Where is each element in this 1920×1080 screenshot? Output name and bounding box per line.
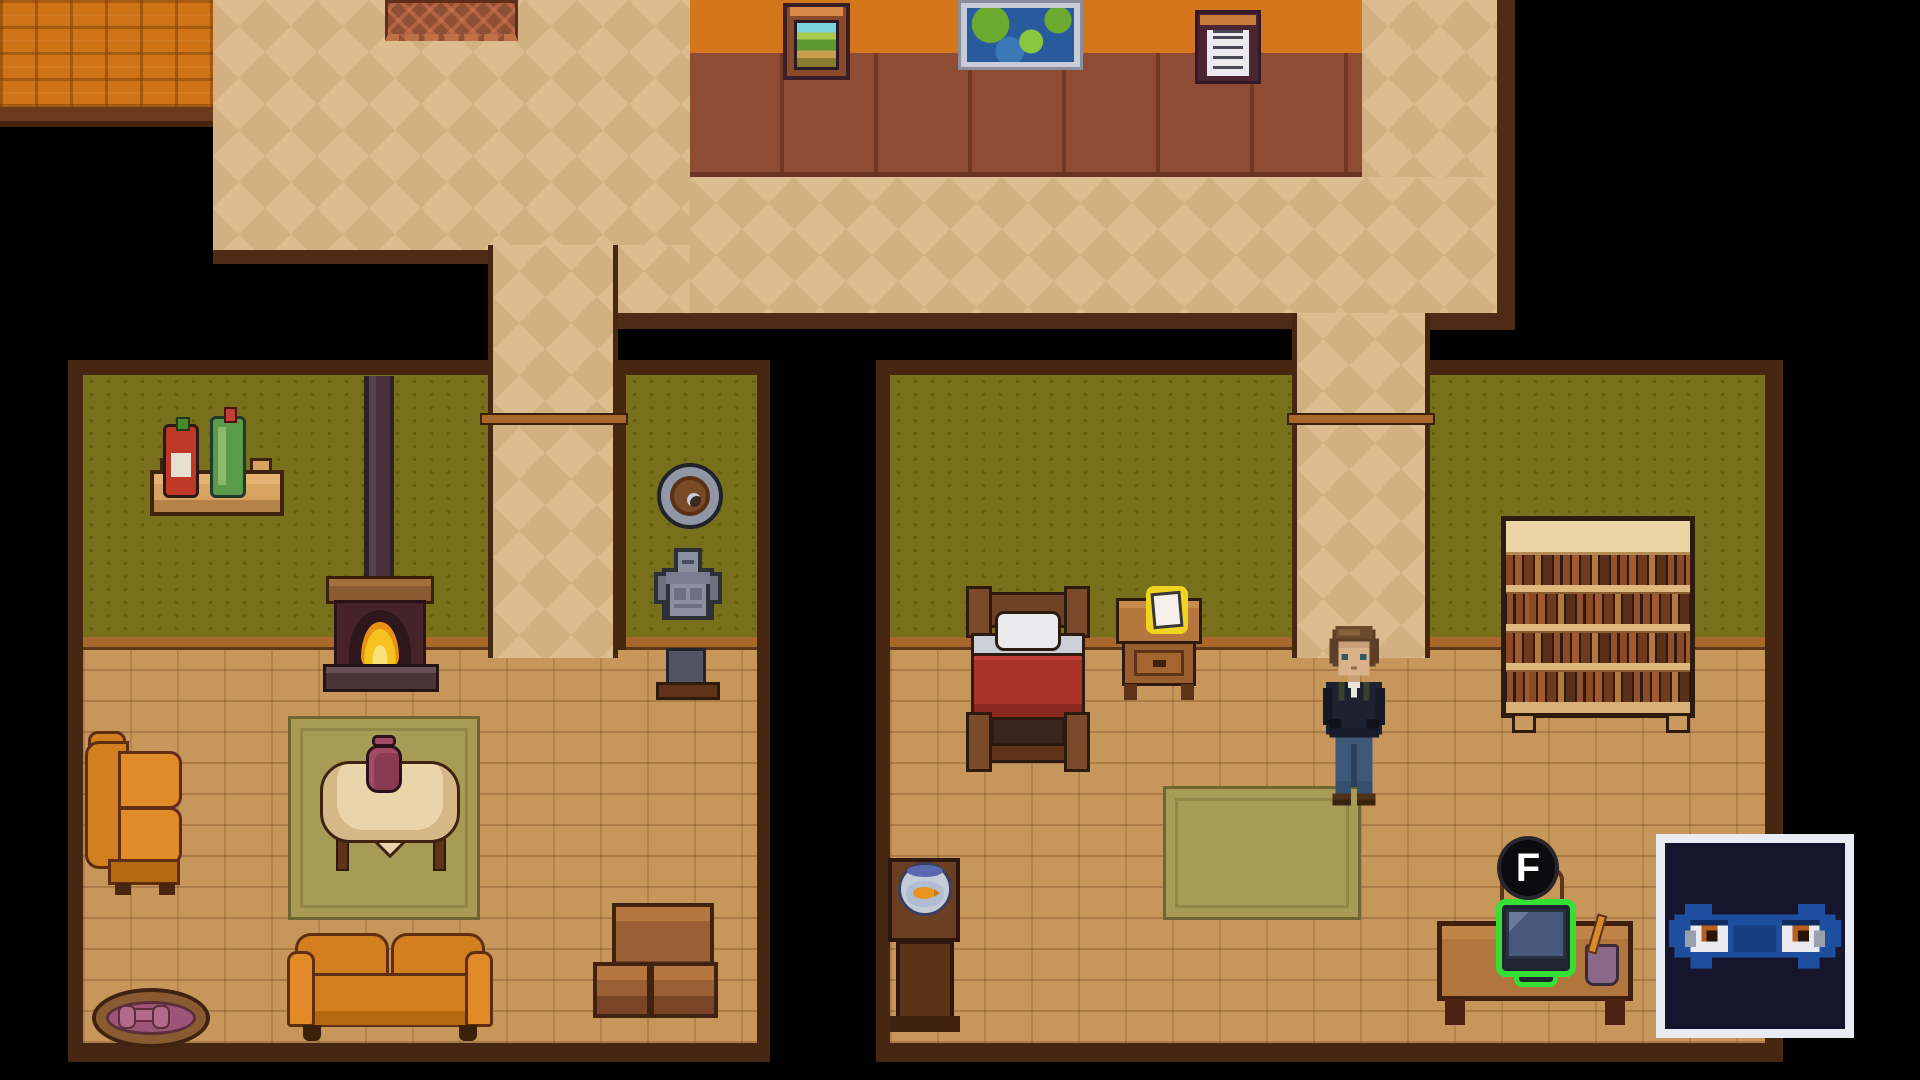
world-map	[958, 0, 1083, 70]
bookshelf-shelves	[1506, 555, 1690, 702]
hallway-floor	[618, 245, 690, 315]
floor-trim	[1497, 0, 1515, 315]
wall-shelf	[148, 418, 288, 522]
bust-statue-figure	[650, 548, 726, 652]
nightstand-leg	[1124, 684, 1137, 700]
roof-shingles	[0, 0, 213, 107]
sofa-armrest	[465, 951, 493, 1027]
painting-art	[794, 20, 839, 70]
green-bottle	[210, 416, 246, 498]
hallway-floor	[1362, 0, 1497, 177]
desk-leg	[1445, 999, 1465, 1025]
vase	[365, 735, 403, 801]
sofa-foot	[459, 1025, 477, 1041]
armchair-cushion	[118, 807, 182, 865]
bottle-shine	[218, 427, 226, 485]
bed-pillow	[995, 611, 1061, 651]
door-lintel	[1287, 413, 1435, 425]
bed-footboard	[985, 743, 1071, 763]
shield-center	[670, 476, 710, 516]
map-art	[967, 8, 1074, 62]
sofa-armrest	[287, 951, 315, 1027]
interact-key-prompt: F	[1497, 836, 1559, 900]
fishbowl	[898, 862, 952, 916]
bottle-cap	[224, 407, 237, 423]
floor-trim	[213, 250, 488, 264]
bedroom-wall	[890, 375, 1297, 640]
shelf-board	[1506, 585, 1690, 594]
sofa	[287, 933, 493, 1045]
hallway-floor	[690, 177, 1497, 313]
bone-toy	[122, 1008, 166, 1022]
bed-post	[966, 712, 992, 772]
chevron-rug	[385, 0, 518, 41]
painting-frame-top	[790, 7, 843, 16]
notice-board	[1195, 10, 1261, 84]
nightstand-drawer	[1134, 650, 1184, 676]
bed-post	[1064, 586, 1090, 638]
bookshelf	[1501, 516, 1695, 718]
book-row	[1506, 633, 1690, 663]
game-viewport[interactable]: F	[0, 0, 1920, 1080]
bookshelf-foot	[1512, 713, 1536, 733]
armchair-cushion	[118, 751, 182, 809]
player-sprite	[1310, 620, 1398, 818]
wood-stove	[323, 576, 439, 696]
sofa-foot	[303, 1025, 321, 1041]
sofa-front	[304, 1011, 476, 1025]
book-row	[1506, 555, 1690, 585]
interact-key-label: F	[1516, 846, 1540, 891]
door-lintel	[480, 413, 628, 425]
wall-shield	[657, 463, 723, 529]
doorway-right	[1292, 313, 1430, 658]
ninja-avatar-overlay	[1656, 834, 1854, 1038]
vase-lip	[372, 735, 396, 747]
book-row	[1506, 672, 1690, 702]
shield-hub	[687, 493, 701, 507]
statue-pedestal	[666, 648, 706, 686]
fishbowl-rim	[907, 865, 943, 877]
desk-leg	[1605, 999, 1625, 1025]
shelf-board	[1506, 663, 1690, 672]
player-character	[1310, 620, 1398, 818]
bottle-label	[171, 453, 191, 477]
ninja-eyes-icon	[1669, 896, 1841, 976]
fishbowl-stand-column	[896, 940, 954, 1022]
glowing-note[interactable]	[1146, 586, 1188, 634]
fishbowl-stand-base	[890, 1016, 960, 1032]
bed	[966, 586, 1090, 776]
pet-bed	[92, 988, 210, 1048]
drawer-handle	[1153, 660, 1166, 667]
bust-statue	[650, 548, 726, 652]
bookshelf-top	[1506, 521, 1690, 555]
statue-base	[656, 682, 720, 700]
bed-post	[966, 586, 992, 638]
bottle-cap	[176, 417, 190, 431]
stove-pipe	[364, 376, 394, 588]
notice-paper	[1207, 30, 1249, 76]
computer[interactable]	[1496, 899, 1576, 977]
armchair-foot	[159, 883, 175, 895]
armchair-base	[108, 859, 180, 885]
crate	[650, 962, 718, 1018]
floor-trim	[618, 313, 1292, 329]
bookshelf-foot	[1666, 713, 1690, 733]
armchair-foot	[115, 883, 131, 895]
note-paper	[1150, 591, 1183, 629]
crate	[593, 962, 651, 1018]
floor-trim	[1430, 313, 1515, 330]
stove-hearth	[323, 664, 439, 692]
bed-post	[1064, 712, 1090, 772]
roof-edge	[0, 107, 218, 127]
nightstand-leg	[1181, 684, 1194, 700]
armchair	[85, 731, 187, 895]
notice-frame-top	[1200, 15, 1256, 25]
red-bottle	[163, 424, 199, 498]
landscape-painting	[783, 3, 850, 80]
doorway-left	[488, 245, 618, 658]
bed-blanket	[971, 653, 1085, 721]
round-table	[320, 753, 462, 875]
shelf-board	[1506, 624, 1690, 633]
book-row	[1506, 594, 1690, 624]
goldfish	[913, 887, 935, 899]
vase-body	[366, 745, 402, 793]
computer-screen	[1506, 909, 1566, 959]
